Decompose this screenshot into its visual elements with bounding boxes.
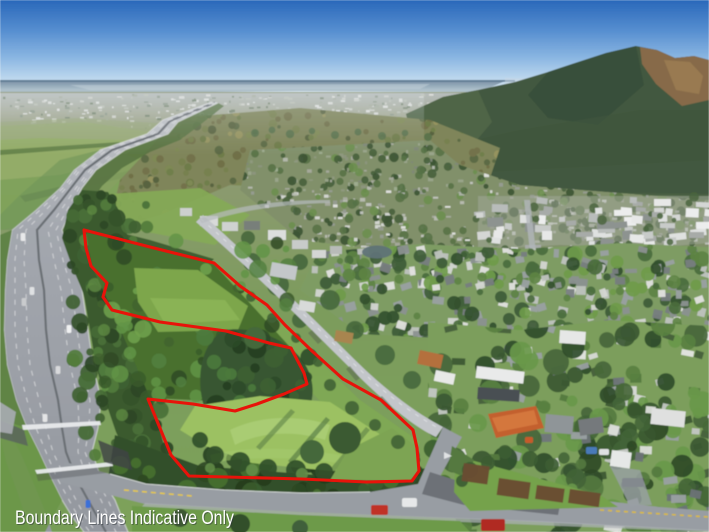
svg-text:Boundary Lines Indicative Only: Boundary Lines Indicative Only (15, 508, 234, 529)
